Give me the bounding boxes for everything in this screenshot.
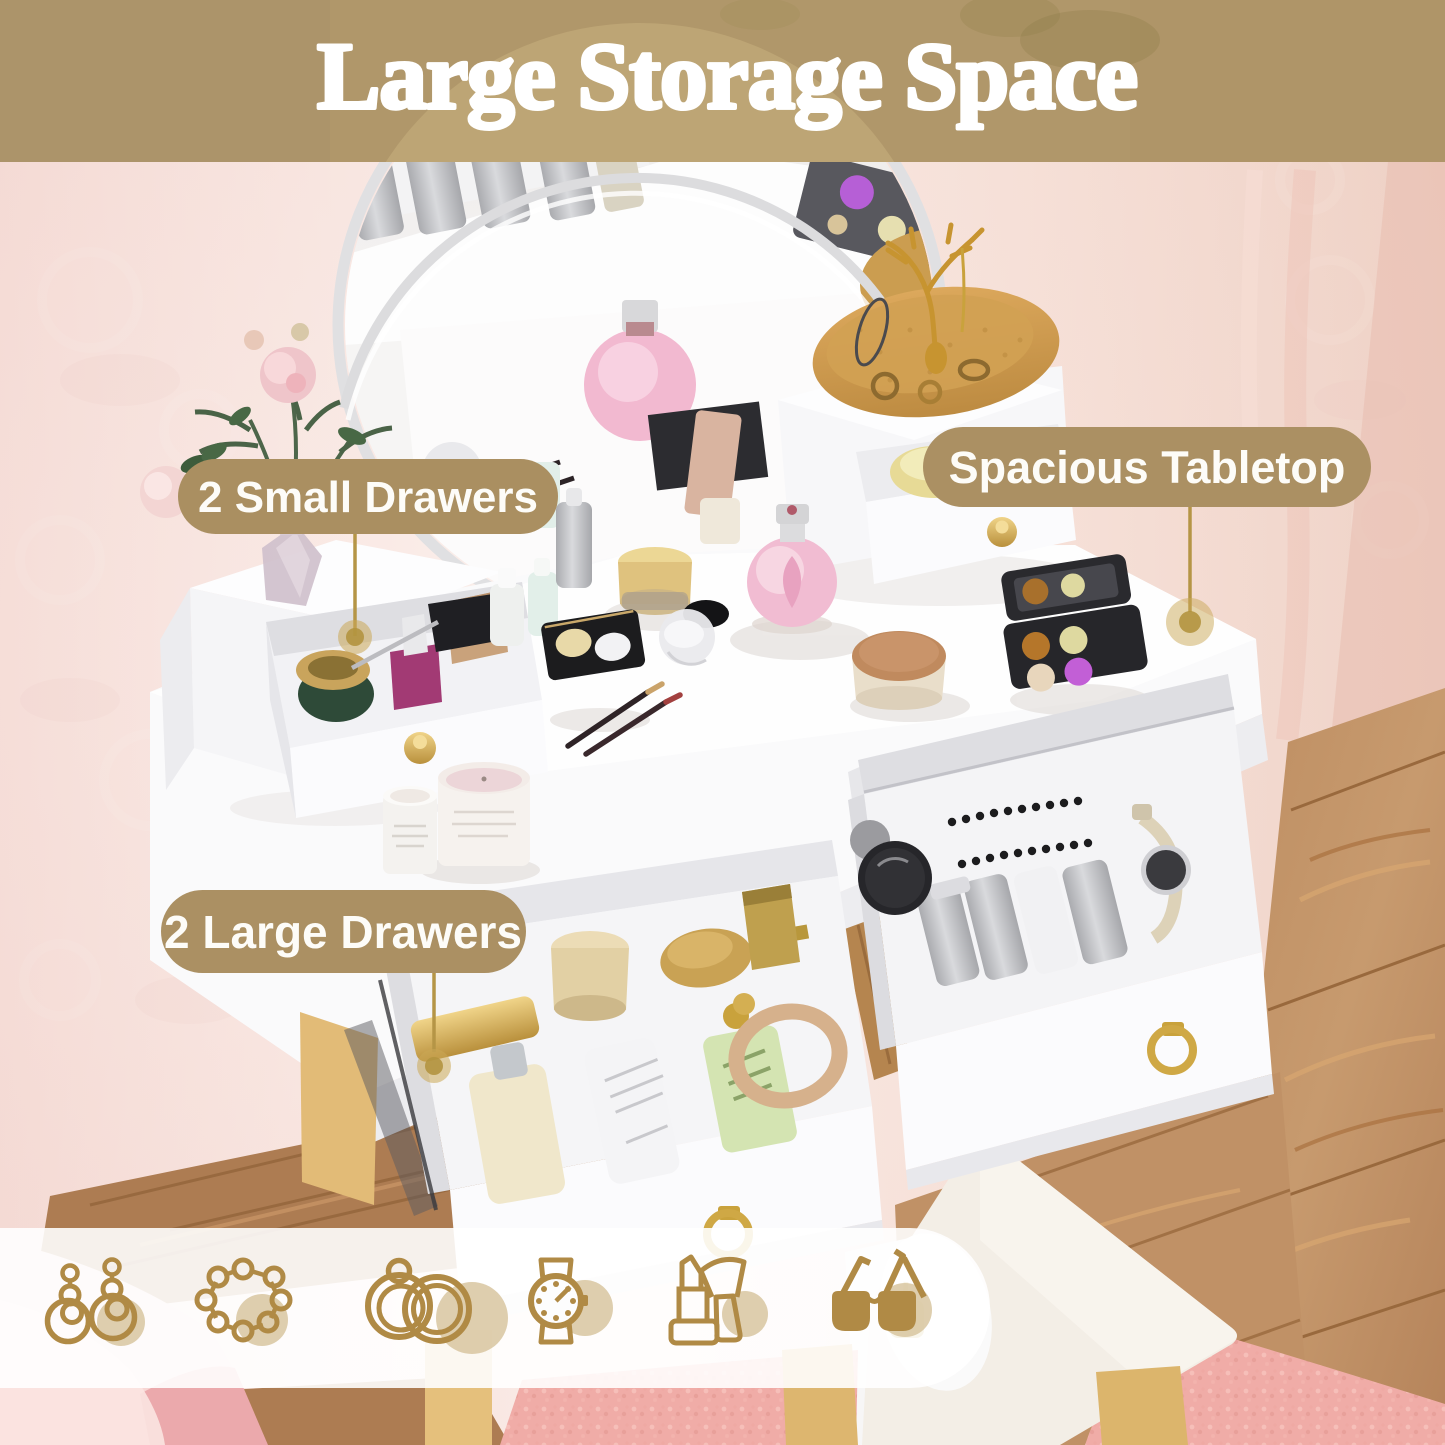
svg-text:Spacious Tabletop: Spacious Tabletop (949, 442, 1346, 493)
svg-text:Large Storage Space: Large Storage Space (317, 23, 1137, 129)
svg-text:2 Large Drawers: 2 Large Drawers (164, 906, 522, 958)
svg-text:2 Small Drawers: 2 Small Drawers (198, 473, 538, 522)
